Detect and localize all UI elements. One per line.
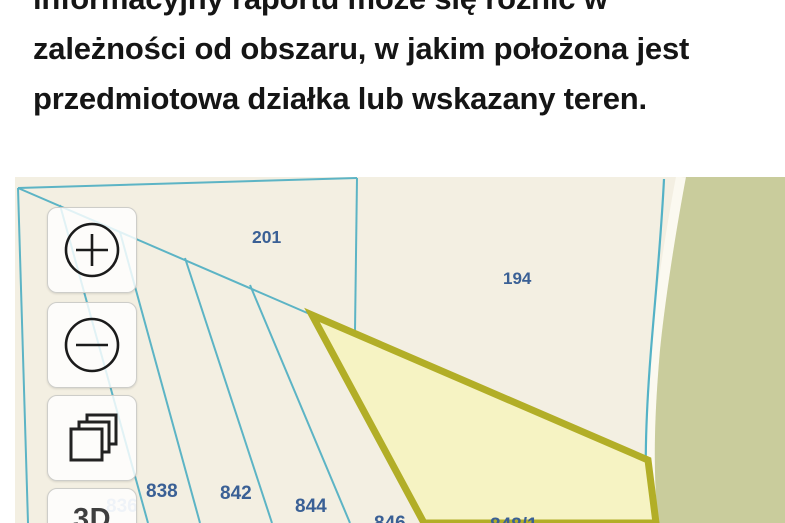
intro-line-1: informacyjny raportu może się różnić w (33, 0, 753, 24)
zoom-in-button[interactable] (47, 207, 137, 293)
parcel-label-838: 838 (146, 481, 178, 502)
three-d-label: 3D (73, 503, 111, 523)
parcel-label-194: 194 (503, 269, 532, 288)
zoom-out-icon (63, 316, 121, 374)
layers-icon (65, 411, 119, 465)
intro-paragraph: informacyjny raportu może się różnić w z… (33, 0, 753, 124)
zoom-in-icon (63, 221, 121, 279)
parcel-label-201: 201 (252, 227, 281, 247)
zoom-out-button[interactable] (47, 302, 137, 388)
parcel-label-846: 846 (374, 513, 406, 523)
intro-line-2: zależności od obszaru, w jakim położona … (33, 24, 753, 74)
parcel-label-844: 844 (295, 496, 327, 517)
intro-line-3: przedmiotowa działka lub wskazany teren. (33, 74, 753, 124)
page: informacyjny raportu może się różnić w z… (0, 0, 785, 523)
parcel-label-848-1: 848/1 (490, 515, 538, 523)
parcel-label-842: 842 (220, 483, 252, 504)
layers-button[interactable] (47, 395, 137, 481)
three-d-button[interactable]: 3D (47, 488, 137, 523)
